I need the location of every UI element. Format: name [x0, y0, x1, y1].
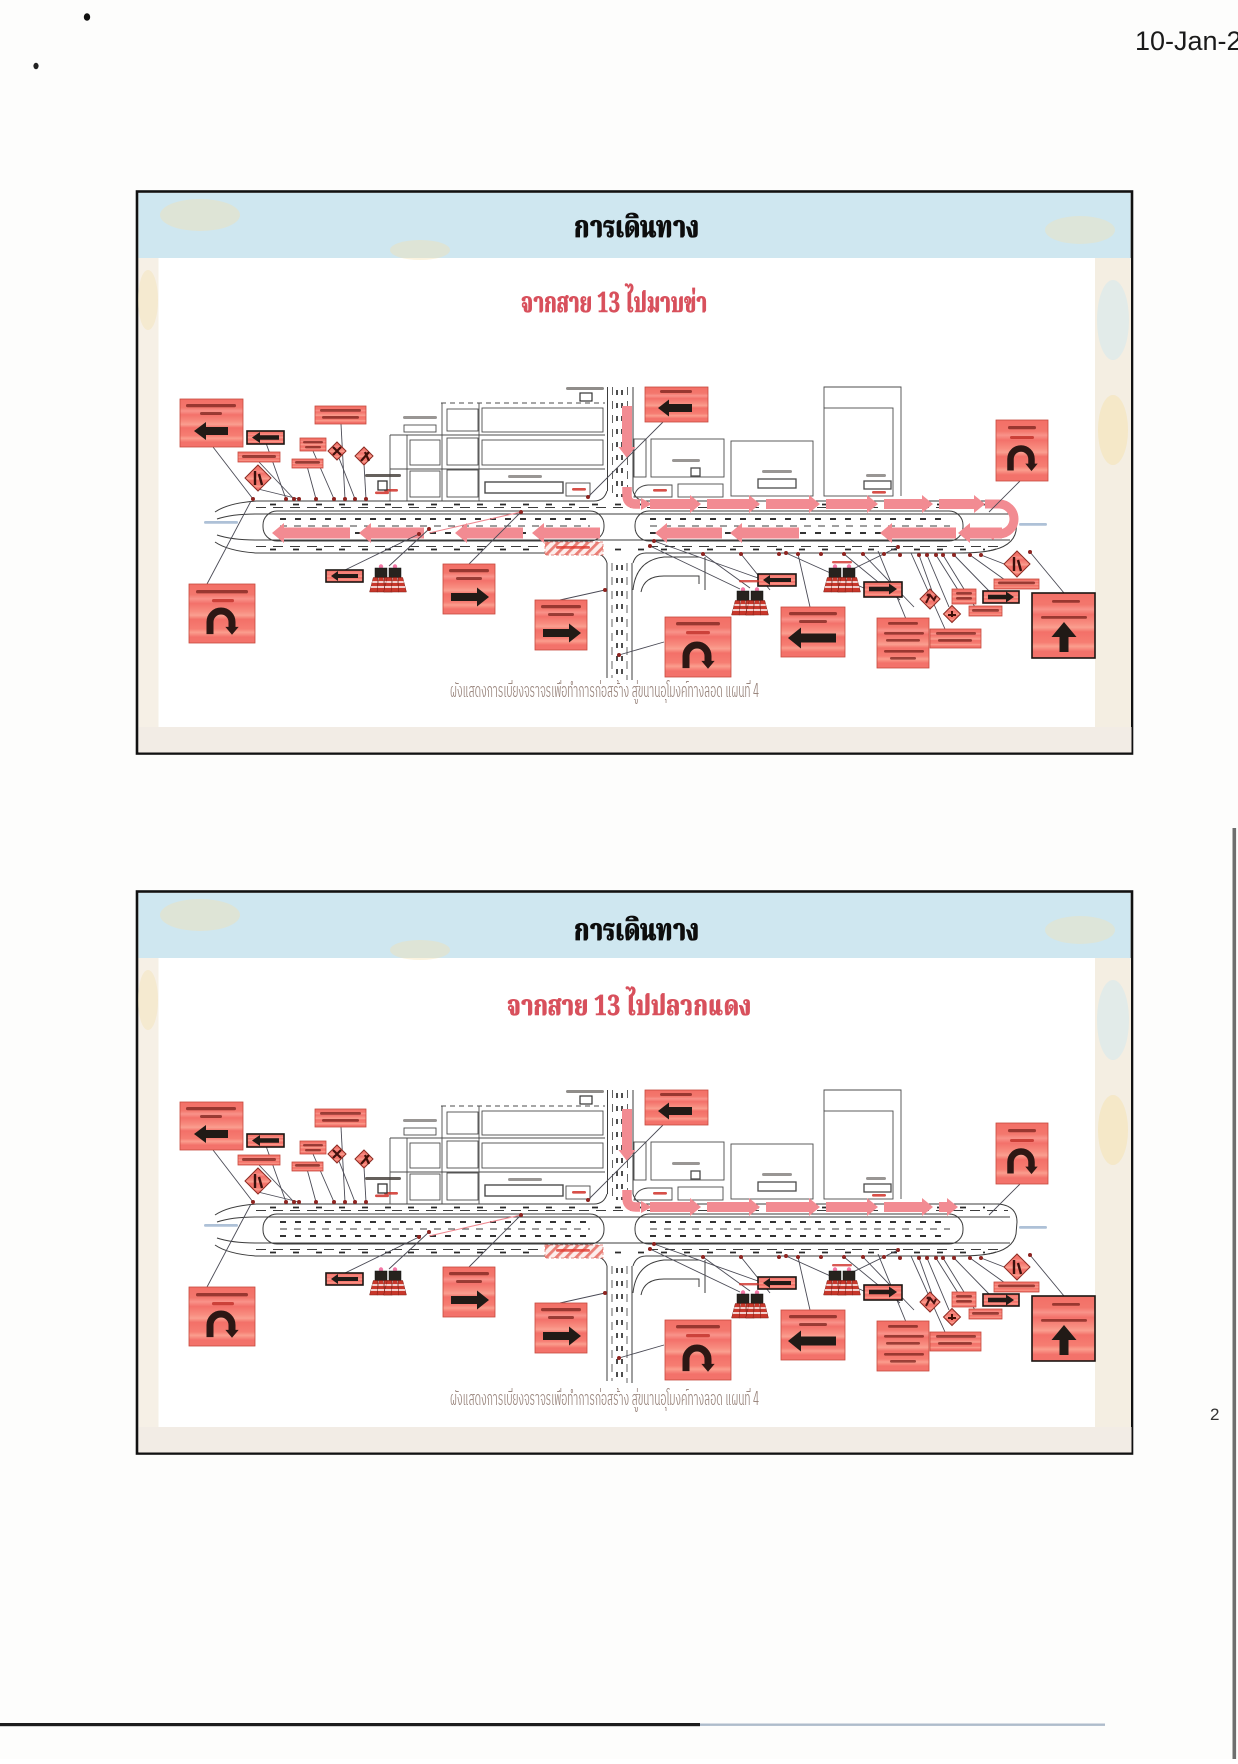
svg-text:2: 2	[1210, 1405, 1219, 1424]
svg-text:10-Jan-2: 10-Jan-2	[1135, 26, 1238, 56]
